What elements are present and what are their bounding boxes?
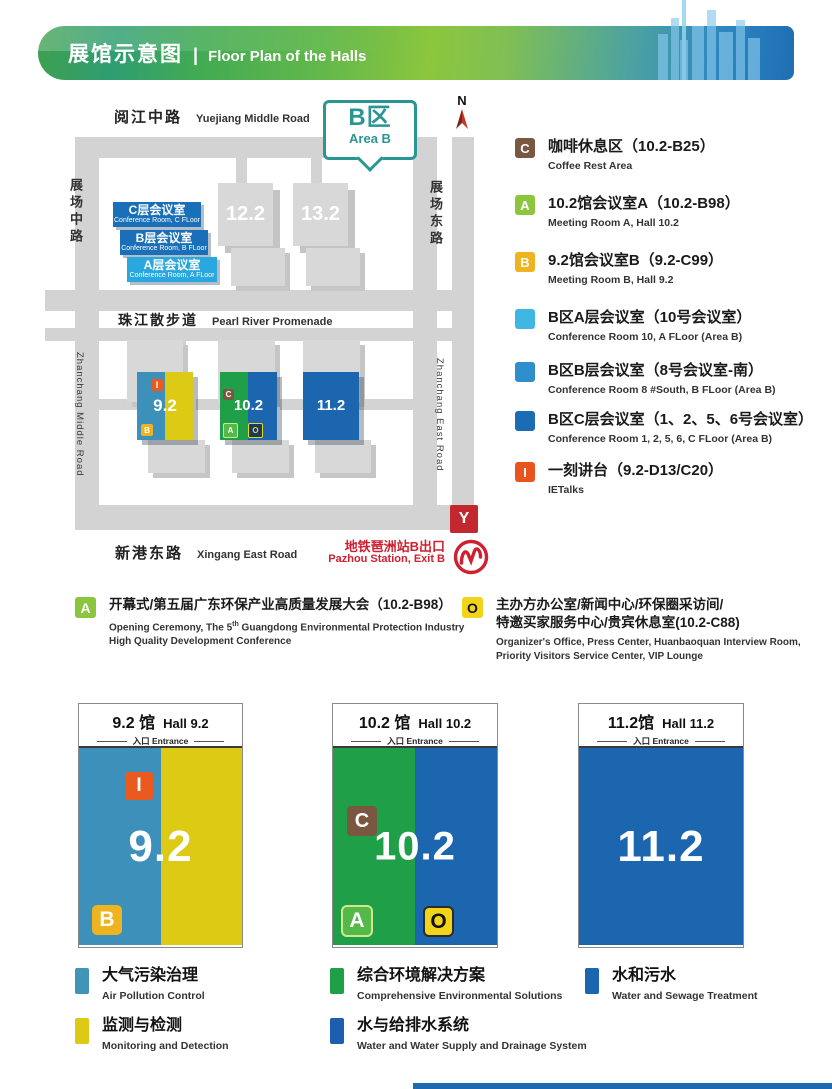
- hall-13-2: 13.2: [293, 183, 348, 246]
- ribbon-a-floor-cn: A层会议室: [127, 259, 217, 272]
- map-badge-c: C: [223, 389, 234, 400]
- ribbon-b-floor-cn: B层会议室: [120, 232, 208, 245]
- card-title-en: Hall 10.2: [418, 716, 471, 731]
- ribbon-b-floor: B层会议室 Conference Room, B FLoor: [120, 230, 208, 255]
- card-title-cn: 10.2 馆: [359, 709, 411, 733]
- card-badge-b: B: [92, 905, 122, 935]
- legend-air-pollution: 大气污染治理 Air Pollution Control: [75, 966, 205, 1002]
- green-swatch: [330, 968, 344, 994]
- page-title-en: Floor Plan of the Halls: [208, 48, 366, 65]
- coffee-badge-icon: C: [515, 138, 535, 158]
- legend-sub: Opening Ceremony, The 5th Guangdong Envi…: [109, 618, 464, 635]
- gray-block: [315, 440, 371, 473]
- hall-card-9-2: 9.2 馆Hall 9.2 入口 Entrance I B 9.2: [78, 703, 243, 948]
- legend-item-opening-ceremony: A 开幕式/第五届广东环保产业高质量发展大会（10.2-B98） Opening…: [75, 596, 464, 648]
- road-stub: [280, 399, 303, 410]
- road-stub: [311, 158, 322, 184]
- entrance-line: [97, 741, 127, 742]
- legend-title: 咖啡休息区（10.2-B25）: [548, 137, 715, 156]
- road-label-xingang: 新港东路 Xingang East Road: [115, 542, 297, 563]
- ribbon-c-floor: C层会议室 Conference Room, C FLoor: [113, 202, 201, 227]
- legend-item-meeting-a: A 10.2馆会议室A（10.2-B98） Meeting Room A, Ha…: [515, 194, 740, 229]
- legend-en: Air Pollution Control: [102, 990, 205, 1002]
- legend-cn: 大气污染治理: [102, 966, 205, 986]
- ribbon-c-floor-cn: C层会议室: [113, 204, 201, 217]
- medium-blue-swatch: [515, 362, 535, 382]
- teal-swatch: [75, 968, 89, 994]
- card-badge-i: I: [125, 772, 153, 800]
- legend-sub: Meeting Room B, Hall 9.2: [548, 274, 723, 286]
- hall-13-2-annex: [306, 248, 360, 286]
- card-title-en: Hall 11.2: [662, 716, 714, 731]
- hall-card-10-2: 10.2 馆Hall 10.2 入口 Entrance C A O 10.2: [332, 703, 498, 948]
- road-label-yuejiang-en: Yuejiang Middle Road: [196, 113, 310, 125]
- ribbon-a-floor: A层会议室 Conference Room, A FLoor: [127, 257, 217, 282]
- legend-item-conf-room-8: B区B层会议室（8号会议室-南） Conference Room 8 #Sout…: [515, 361, 776, 396]
- road-label-zhanchang-east-en: Zhanchang East Road: [434, 358, 445, 472]
- metro-exit-icon: Y: [450, 505, 478, 533]
- map-badge-o: O: [248, 423, 263, 438]
- sub-text: Guangdong Environmental Protection Indus…: [239, 622, 465, 633]
- legend-cn: 水与给排水系统: [357, 1016, 587, 1036]
- card-9-2-number: 9.2: [79, 822, 242, 872]
- city-skyline-icon: [640, 2, 780, 80]
- legend-title: 一刻讲台（9.2-D13/C20）: [548, 461, 723, 480]
- map-hall-11-2: 11.2: [303, 372, 359, 440]
- entrance-line: [695, 741, 725, 742]
- opening-badge-icon: A: [75, 597, 96, 618]
- road-label-zhanchang-east-cn: 展场东路: [426, 180, 445, 248]
- legend-cn: 综合环境解决方案: [357, 966, 562, 986]
- card-badge-a: A: [341, 905, 373, 937]
- road-stub: [196, 399, 220, 410]
- meeting-a-badge-icon: A: [515, 195, 535, 215]
- metro-station-label-en: Pazhou Station, Exit B: [285, 553, 445, 565]
- legend-sub: Organizer's Office, Press Center, Huanba…: [496, 636, 801, 650]
- legend-item-conf-room-c: B区C层会议室（1、2、5、6号会议室） Conference Room 1, …: [515, 410, 813, 445]
- blue-swatch: [330, 1018, 344, 1044]
- dark-blue-swatch: [515, 411, 535, 431]
- map-hall-11-2-label: 11.2: [303, 397, 359, 414]
- legend-water-supply: 水与给排水系统 Water and Water Supply and Drain…: [330, 1016, 587, 1052]
- road-label-xingang-cn: 新港东路: [115, 542, 183, 563]
- legend-en: Water and Water Supply and Drainage Syst…: [357, 1040, 587, 1052]
- area-b-badge-cn: B区: [326, 105, 414, 131]
- road-label-xingang-en: Xingang East Road: [197, 549, 297, 561]
- legend-item-conf-room-10: B区A层会议室（10号会议室） Conference Room 10, A FL…: [515, 308, 751, 343]
- title-divider: |: [193, 45, 198, 66]
- legend-cn: 水和污水: [612, 966, 758, 986]
- legend-sub: Priority Visitors Service Center, VIP Lo…: [496, 650, 801, 664]
- ribbon-b-floor-en: Conference Room, B FLoor: [120, 245, 208, 253]
- legend-title: 9.2馆会议室B（9.2-C99）: [548, 251, 723, 270]
- legend-title: B区C层会议室（1、2、5、6号会议室）: [548, 410, 813, 429]
- sub-text: Opening Ceremony, The 5: [109, 622, 232, 633]
- hall-card-9-2-header: 9.2 馆Hall 9.2 入口 Entrance: [79, 704, 242, 748]
- entrance-line: [194, 741, 224, 742]
- legend-sub: Conference Room 1, 2, 5, 6, C FLoor (Are…: [548, 433, 813, 445]
- hall-card-11-2: 11.2馆Hall 11.2 入口 Entrance 11.2: [578, 703, 744, 948]
- legend-title: B区A层会议室（10号会议室）: [548, 308, 751, 327]
- entrance-label: 入口 Entrance: [633, 735, 689, 747]
- page-title: 展馆示意图 | Floor Plan of the Halls: [68, 38, 366, 68]
- legend-sub: Conference Room 10, A FLoor (Area B): [548, 331, 751, 343]
- entrance-label: 入口 Entrance: [387, 735, 443, 747]
- ietalks-badge-icon: I: [515, 462, 535, 482]
- legend-cn: 监测与检测: [102, 1016, 229, 1036]
- hall-12-2-label: 12.2: [226, 203, 265, 226]
- road-bottom: [75, 505, 452, 530]
- card-badge-c: C: [347, 806, 377, 836]
- hall-card-10-2-body: C A O 10.2: [333, 748, 497, 945]
- road-label-zhanchang-middle-cn: 展场中路: [66, 178, 85, 246]
- map-badge-b: B: [141, 424, 153, 436]
- hall-card-11-2-body: 11.2: [579, 748, 743, 945]
- compass-n-label: N: [452, 93, 472, 108]
- card-badge-o: O: [423, 906, 454, 937]
- hall-card-11-2-header: 11.2馆Hall 11.2 入口 Entrance: [579, 704, 743, 748]
- entrance-line: [597, 741, 627, 742]
- map-hall-9-2-label: 9.2: [137, 396, 193, 416]
- ribbon-c-floor-en: Conference Room, C FLoor: [113, 217, 201, 225]
- road-label-promenade-cn: 珠江散步道: [118, 310, 198, 330]
- map-badge-i: I: [151, 379, 163, 391]
- legend-sub: High Quality Development Conference: [109, 635, 464, 649]
- card-title-cn: 9.2 馆: [112, 709, 155, 733]
- hall-12-2: 12.2: [218, 183, 273, 246]
- legend-sub: Coffee Rest Area: [548, 160, 715, 172]
- metro-logo-icon: [452, 538, 490, 576]
- road-label-yuejiang: 阅江中路 Yuejiang Middle Road: [114, 106, 310, 127]
- legend-item-organizer-office: O 主办方办公室/新闻中心/环保圈采访间/ 特邀买家服务中心/贵宾休息室(10.…: [462, 596, 801, 663]
- legend-title: B区B层会议室（8号会议室-南）: [548, 361, 776, 380]
- legend-sub: Conference Room 8 #South, B FLoor (Area …: [548, 384, 776, 396]
- header-banner: 展馆示意图 | Floor Plan of the Halls: [38, 26, 794, 80]
- meeting-b-badge-icon: B: [515, 252, 535, 272]
- sub-sup: th: [232, 621, 239, 628]
- legend-en: Comprehensive Environmental Solutions: [357, 990, 562, 1002]
- road-label-promenade-en: Pearl River Promenade: [212, 316, 332, 328]
- gray-block: [148, 440, 205, 473]
- card-title-cn: 11.2馆: [608, 709, 654, 733]
- road-stub: [236, 158, 247, 184]
- road-right-outer: [452, 137, 474, 507]
- ribbon-a-floor-en: Conference Room, A FLoor: [127, 272, 217, 280]
- card-11-2-number: 11.2: [579, 822, 743, 872]
- legend-en: Monitoring and Detection: [102, 1040, 229, 1052]
- legend-comprehensive: 综合环境解决方案 Comprehensive Environmental Sol…: [330, 966, 562, 1002]
- hall-card-10-2-header: 10.2 馆Hall 10.2 入口 Entrance: [333, 704, 497, 748]
- compass-arrow-icon: [455, 109, 469, 129]
- legend-water-sewage: 水和污水 Water and Sewage Treatment: [585, 966, 758, 1002]
- organizer-badge-icon: O: [462, 597, 483, 618]
- blue-swatch: [585, 968, 599, 994]
- hall-card-9-2-body: I B 9.2: [79, 748, 242, 945]
- card-title-en: Hall 9.2: [163, 716, 209, 731]
- gray-block: [232, 440, 289, 473]
- compass: N: [452, 93, 472, 129]
- area-b-badge: B区 Area B: [323, 100, 417, 160]
- legend-item-ietalks: I 一刻讲台（9.2-D13/C20） IETalks: [515, 461, 723, 496]
- area-b-badge-pointer: [357, 145, 384, 172]
- legend-item-meeting-b: B 9.2馆会议室B（9.2-C99） Meeting Room B, Hall…: [515, 251, 723, 286]
- road-stub: [359, 399, 413, 410]
- legend-sub: Meeting Room A, Hall 10.2: [548, 217, 740, 229]
- road-label-yuejiang-cn: 阅江中路: [114, 106, 182, 127]
- hall-13-2-label: 13.2: [301, 203, 340, 226]
- yellow-swatch: [75, 1018, 89, 1044]
- legend-sub: IETalks: [548, 484, 723, 496]
- legend-item-coffee: C 咖啡休息区（10.2-B25） Coffee Rest Area: [515, 137, 715, 172]
- legend-title: 开幕式/第五届广东环保产业高质量发展大会（10.2-B98）: [109, 596, 464, 614]
- legend-en: Water and Sewage Treatment: [612, 990, 758, 1002]
- hall-12-2-annex: [231, 248, 285, 286]
- floor-plan-page: 展馆示意图 | Floor Plan of the Halls 阅江中路: [0, 0, 832, 1089]
- legend-title: 主办方办公室/新闻中心/环保圈采访间/: [496, 596, 801, 614]
- entrance-line: [351, 741, 381, 742]
- footer-accent-line: [413, 1083, 832, 1089]
- map-badge-a: A: [223, 423, 238, 438]
- entrance-line: [449, 741, 479, 742]
- legend-monitoring: 监测与检测 Monitoring and Detection: [75, 1016, 229, 1052]
- area-b-badge-en: Area B: [326, 131, 414, 146]
- legend-title: 特邀买家服务中心/贵宾休息室(10.2-C88): [496, 614, 801, 632]
- road-label-zhanchang-middle-en: Zhanchang Middle Road: [74, 352, 85, 477]
- road-label-promenade: 珠江散步道 Pearl River Promenade: [118, 310, 332, 330]
- legend-title: 10.2馆会议室A（10.2-B98）: [548, 194, 740, 213]
- entrance-label: 入口 Entrance: [133, 735, 189, 747]
- light-blue-swatch: [515, 309, 535, 329]
- page-title-cn: 展馆示意图: [68, 38, 183, 68]
- road-middle-upper: [45, 290, 474, 311]
